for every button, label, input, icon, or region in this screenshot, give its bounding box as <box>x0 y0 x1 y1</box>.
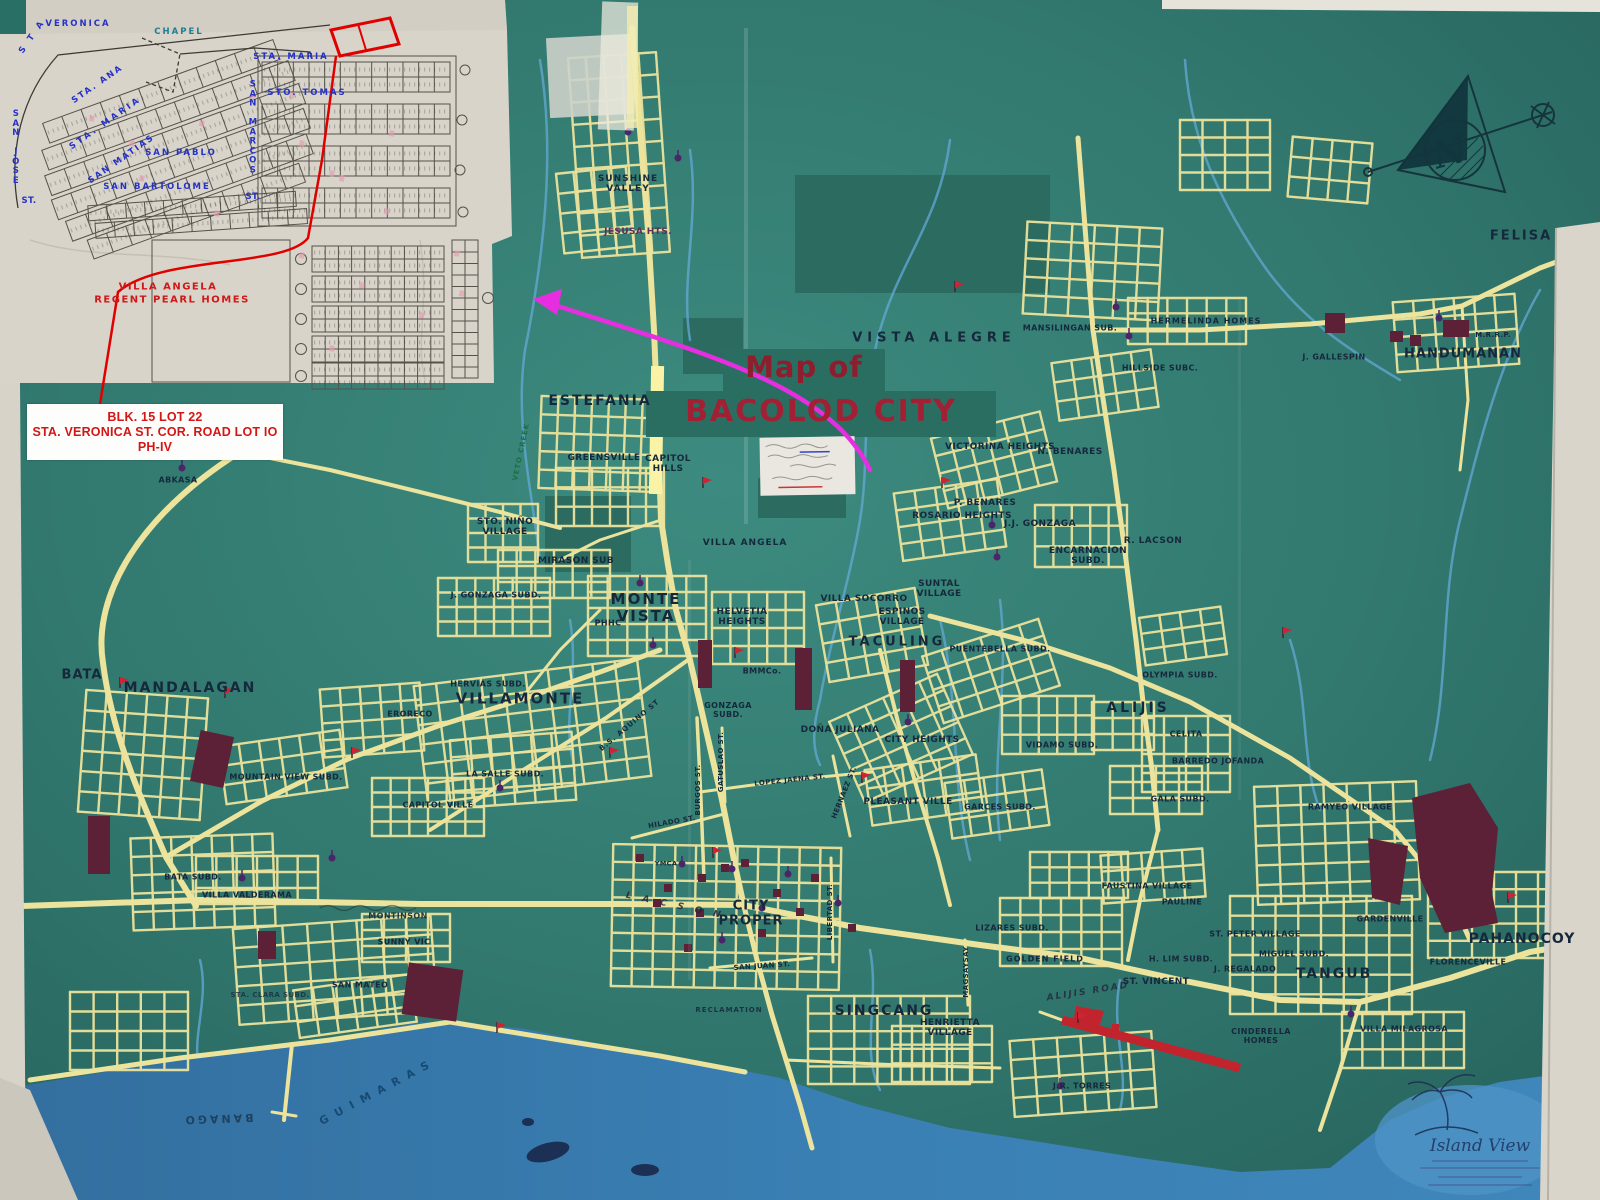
logo-fineprint-line <box>1432 1160 1528 1162</box>
callout-line1: BLK. 15 LOT 22 <box>27 410 283 425</box>
map-title-line2: BACOLOD CITY <box>646 394 996 429</box>
island-view-logo-text: Island View <box>1400 1136 1560 1156</box>
logo-fineprint-line <box>1420 1167 1540 1169</box>
map-artwork <box>0 0 1600 1200</box>
logo-fineprint-line <box>1428 1184 1532 1186</box>
location-note-patch <box>760 436 856 496</box>
logo-fineprint-line <box>1438 1176 1522 1178</box>
lot-address-callout: BLK. 15 LOT 22 STA. VERONICA ST. COR. RO… <box>27 404 283 460</box>
inset-plat <box>0 0 512 404</box>
callout-line3: PH-IV <box>27 440 283 455</box>
map-title-line1: Map of <box>723 350 885 384</box>
bacolod-city-map-photo: SUNSHINE VALLEYJESUSA HTS.VISTA ALEGREMA… <box>0 0 1600 1200</box>
callout-line2: STA. VERONICA ST. COR. ROAD LOT IO <box>27 425 283 440</box>
